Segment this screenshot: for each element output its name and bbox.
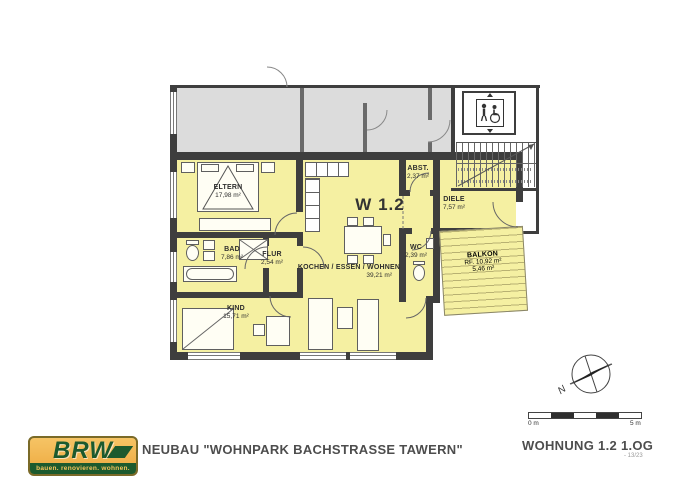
room-name: BAD	[206, 245, 258, 254]
window-symbol	[188, 352, 240, 360]
wall-segment	[536, 190, 539, 233]
balcony-area: BALKON RF. 10,92 m² 5,46 m²	[439, 226, 528, 316]
room-area: 15,71 m²	[212, 313, 260, 321]
room-area: 2,39 m²	[401, 252, 431, 260]
scale-end-label: 5 m	[630, 420, 641, 427]
room-name: KIND	[212, 304, 260, 313]
compass-north-label: N	[556, 383, 569, 397]
kitchen-counter-symbol	[305, 178, 320, 232]
coffee-table-symbol	[337, 307, 353, 329]
wardrobe-symbol	[199, 218, 271, 231]
room-area: 7,86 m²	[206, 254, 258, 262]
room-name: DIELE	[431, 195, 477, 204]
scale-start-label: 0 m	[528, 420, 539, 427]
room-label-wc: WC 2,39 m²	[401, 243, 431, 261]
wall-segment	[451, 88, 455, 152]
page-reference: - 13/23	[624, 453, 643, 459]
wall-segment	[263, 268, 269, 292]
wall-segment	[300, 88, 304, 152]
room-area: 17,98 m²	[203, 192, 253, 200]
unit-title: WOHNUNG 1.2 1.OG	[522, 438, 682, 453]
scale-bar	[528, 412, 642, 419]
wall-segment	[536, 85, 539, 190]
unit-label: W 1.2	[338, 195, 422, 215]
elevator-icon	[476, 99, 504, 127]
scale-bar-segment	[619, 413, 641, 418]
stair-numbering	[458, 180, 532, 183]
stair-landing-line	[456, 163, 536, 164]
wall-segment	[399, 296, 406, 302]
room-label-bad: BAD 7,86 m²	[206, 245, 258, 263]
wall-segment	[399, 228, 412, 234]
sofa-symbol	[308, 298, 333, 350]
scale-bar-segment	[574, 413, 596, 418]
scale-bar-segment	[529, 413, 551, 418]
nightstand-symbol	[181, 162, 195, 173]
wall-segment	[428, 142, 432, 152]
window-symbol	[170, 92, 177, 134]
chair-symbol	[383, 234, 391, 246]
room-label-diele: DIELE 7,57 m²	[431, 195, 477, 213]
scale-bar-segment	[551, 413, 573, 418]
wall-segment	[363, 103, 367, 152]
bathtub-symbol	[186, 268, 234, 280]
elevator-up-arrow-icon	[487, 93, 493, 97]
room-area: 2,37 m²	[400, 173, 436, 181]
chair-symbol	[347, 217, 358, 226]
scale-bar-segment	[596, 413, 618, 418]
window-symbol	[300, 352, 346, 360]
wall-segment	[296, 160, 303, 212]
project-title: NEUBAU "WOHNPARK BACHSTRASSE TAWERN"	[142, 442, 492, 457]
room-label-abst: ABST. 2,37 m²	[400, 164, 436, 182]
floor-plan-sheet: BALKON RF. 10,92 m² 5,46 m²	[0, 0, 690, 487]
toilet-symbol	[413, 265, 425, 281]
window-symbol	[170, 252, 177, 282]
wall-segment	[451, 188, 539, 191]
wall-segment	[426, 302, 433, 356]
sofa-symbol	[357, 299, 379, 351]
wall-segment	[428, 88, 432, 120]
nightstand-symbol	[261, 162, 275, 173]
window-symbol	[170, 300, 177, 342]
room-label-kind: KIND 15,71 m²	[212, 304, 260, 322]
room-label-flur: FLUR 2,54 m²	[252, 250, 292, 268]
neighbor-apartment-fill	[177, 88, 451, 152]
toilet-symbol	[186, 245, 199, 261]
chair-symbol	[363, 217, 374, 226]
room-name: ELTERN	[203, 183, 253, 192]
room-name: WC	[401, 243, 431, 252]
pillow-symbol	[201, 164, 219, 172]
room-label-kochen-essen-wohnen: KOCHEN / ESSEN / WOHNEN 39,21 m²	[296, 263, 402, 281]
room-area: 39,21 m²	[296, 272, 402, 280]
pillow-symbol	[236, 164, 254, 172]
room-label-eltern: ELTERN 17,98 m²	[203, 183, 253, 201]
room-name: FLUR	[252, 250, 292, 259]
north-needle-icon	[570, 363, 612, 385]
elevator-down-arrow-icon	[487, 129, 493, 133]
room-name: KOCHEN / ESSEN / WOHNEN	[296, 263, 402, 272]
wall-segment	[177, 232, 303, 238]
room-area: 2,54 m²	[252, 259, 292, 267]
window-symbol	[350, 352, 396, 360]
stair-numbering	[458, 168, 532, 171]
room-area: 7,57 m²	[431, 204, 477, 212]
brw-logo-tagline: bauen. renovieren. wohnen.	[30, 463, 136, 474]
desk-symbol	[266, 316, 290, 346]
door-arc	[267, 67, 287, 87]
room-name: ABST.	[400, 164, 436, 173]
wall-segment	[170, 85, 540, 88]
kitchen-counter-symbol	[305, 162, 349, 177]
window-symbol	[170, 172, 177, 218]
wall-segment	[177, 292, 303, 298]
wall-segment	[297, 238, 303, 246]
elevator-pictogram-icon	[477, 100, 503, 126]
dining-table-symbol	[344, 226, 382, 254]
chair-symbol	[253, 324, 265, 336]
brw-logo: BRW bauen. renovieren. wohnen.	[28, 436, 138, 476]
compass-rose-icon: N	[556, 355, 612, 397]
